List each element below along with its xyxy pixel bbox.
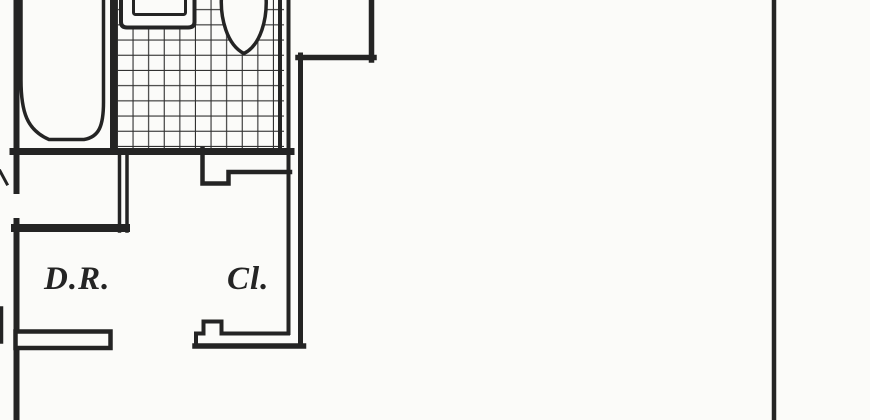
wall-fragment-diagonal: [0, 171, 7, 184]
room-label-closet: Cl.: [227, 261, 269, 297]
wall-closet-bottom-inner: [196, 322, 288, 345]
wall-dining-room-bottom: [16, 332, 111, 349]
bathtub-icon: [21, 0, 104, 140]
floor-plan-page: D.R. Cl.: [0, 0, 870, 420]
floor-plan-canvas: D.R. Cl.: [0, 0, 870, 420]
room-label-dining-room: D.R.: [43, 261, 110, 297]
sink-basin-icon: [134, 0, 186, 15]
walls-group: [0, 0, 774, 420]
